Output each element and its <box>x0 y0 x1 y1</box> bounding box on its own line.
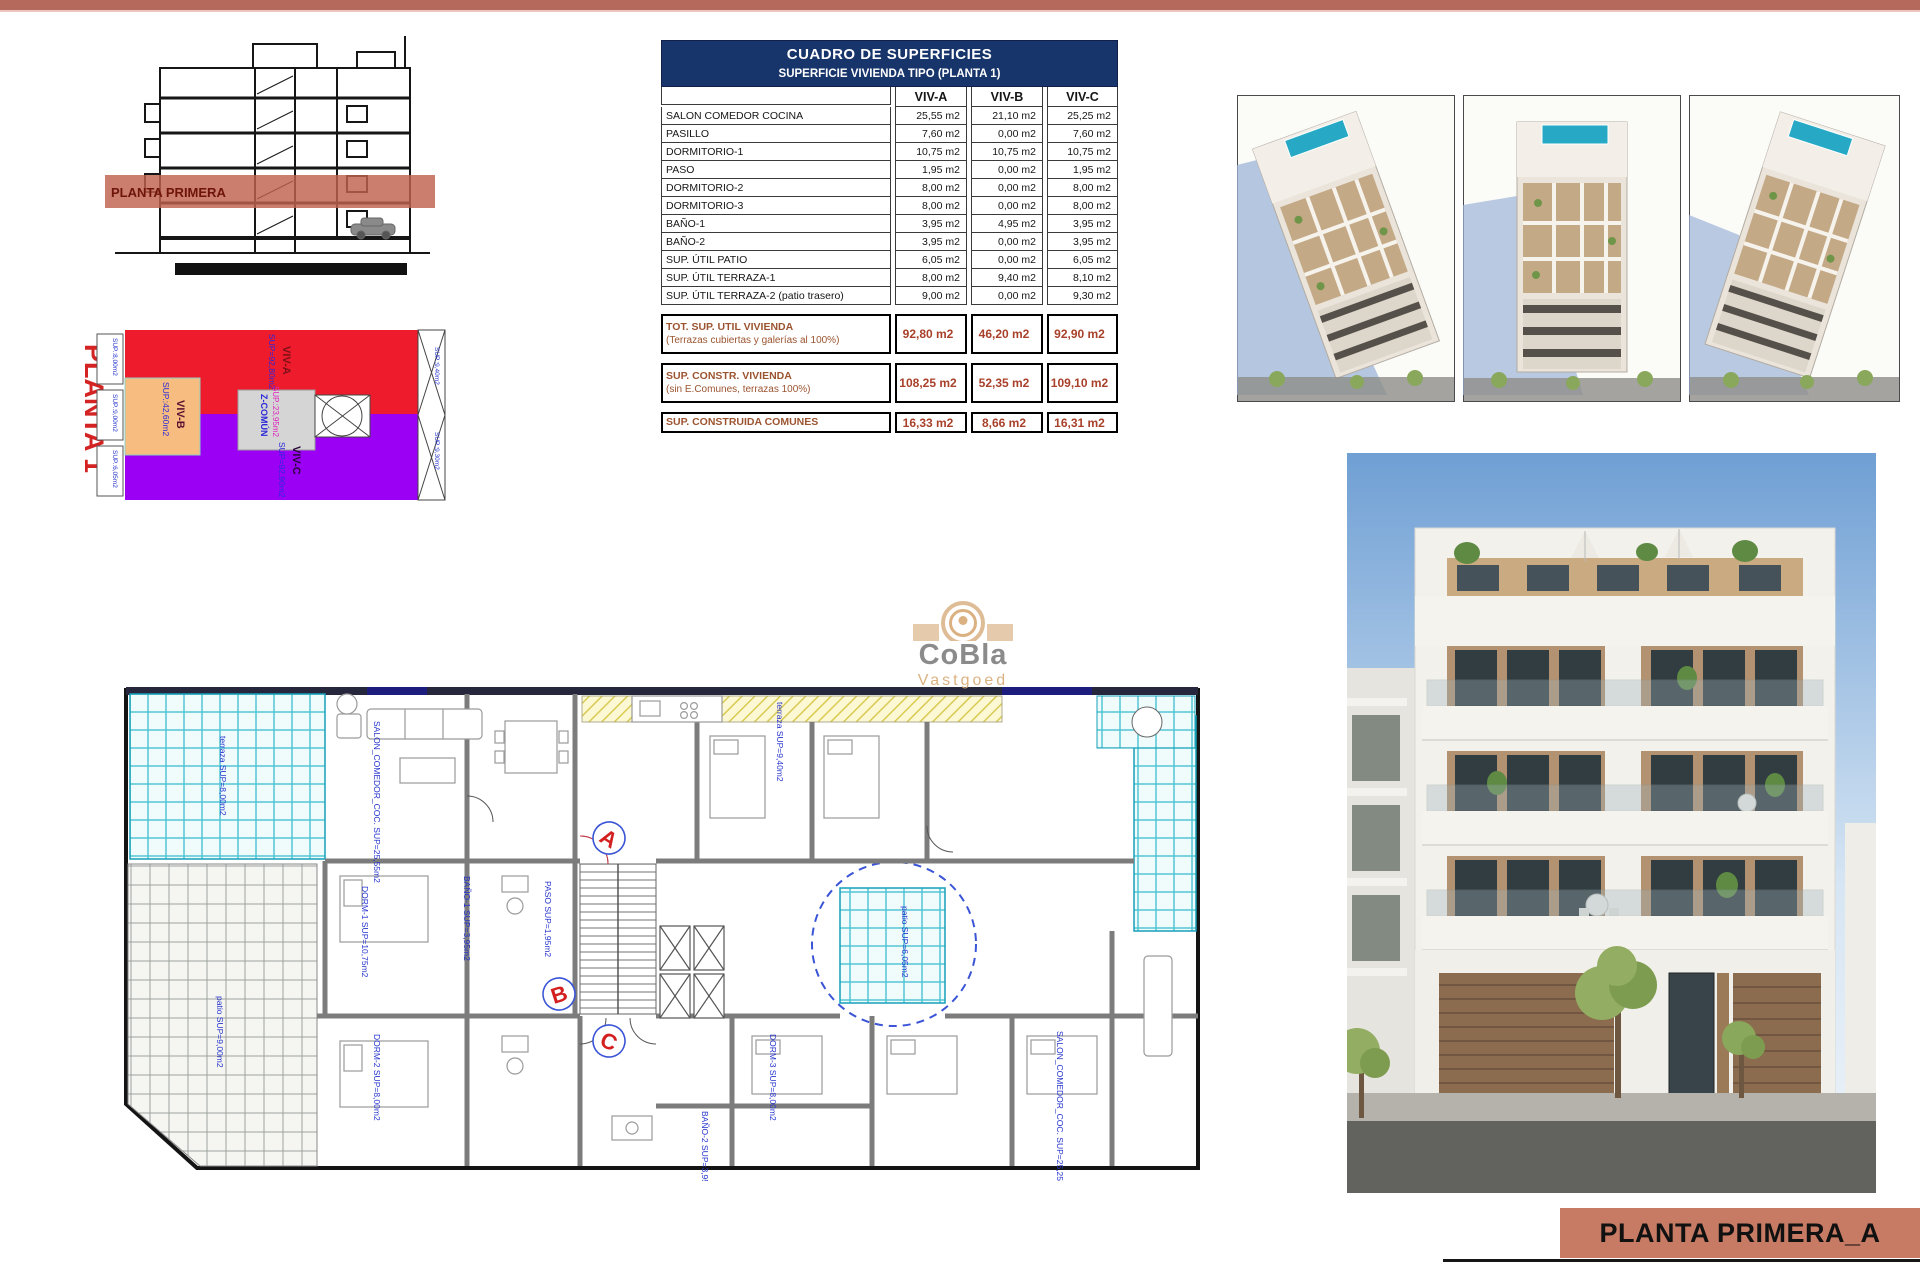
total-value: 92,80 m2 <box>895 314 967 354</box>
aerial-render-3 <box>1689 95 1900 402</box>
zone-label-viv-a: VIV-A <box>280 346 292 375</box>
facade-render <box>1347 453 1876 1193</box>
edge-label: SUP.:9,40m2 <box>433 347 440 385</box>
patio-tiles-center <box>840 888 945 1003</box>
sidewalk <box>1347 1093 1876 1121</box>
total-value: 108,25 m2 <box>895 363 967 403</box>
entrance-door <box>1669 973 1714 1098</box>
total-value: 52,35 m2 <box>971 363 1043 403</box>
col-header: VIV-B <box>971 87 1043 107</box>
cell-value: 8,00 m2 <box>1047 197 1118 215</box>
col-header: VIV-A <box>895 87 967 107</box>
table-gap <box>661 354 1118 363</box>
room-label: DORM-2 SUP=8,00m2 <box>372 1034 382 1121</box>
cell-value: 1,95 m2 <box>1047 161 1118 179</box>
cell-value: 0,00 m2 <box>971 125 1043 143</box>
total-label: SUP. CONSTR. VIVIENDA (sin E.Comunes, te… <box>661 363 891 403</box>
cell-value: 3,95 m2 <box>895 233 967 251</box>
zone-sup-viv-b: SUP.:42,60m2 <box>161 382 171 436</box>
row-label: BAÑO-2 <box>661 233 891 251</box>
cell-value: 0,00 m2 <box>971 179 1043 197</box>
edge-label: SUP.:8,00m2 <box>111 338 118 376</box>
watermark-logo: CoBla Vastgoed <box>893 597 1033 690</box>
top-accent-bar <box>0 0 1920 12</box>
cell-value: 7,60 m2 <box>895 125 967 143</box>
zone-sup-comun: SUP.:23,95m2 <box>271 386 280 438</box>
cell-value: 0,00 m2 <box>971 251 1043 269</box>
balcony-level-3 <box>1422 856 1828 950</box>
row-label: PASO <box>661 161 891 179</box>
cell-value: 8,00 m2 <box>895 179 967 197</box>
watermark-subname: Vastgoed <box>893 672 1033 690</box>
cell-value: 1,95 m2 <box>895 161 967 179</box>
edge-label: SUP.:9,30m2 <box>433 432 440 470</box>
cell-value: 3,95 m2 <box>895 215 967 233</box>
planta1-left-terraces <box>97 334 123 496</box>
cell-value: 0,00 m2 <box>971 287 1043 305</box>
room-label: terraza SUP=9,40m2 <box>775 702 785 782</box>
cell-value: 8,00 m2 <box>895 269 967 287</box>
row-label: DORMITORIO-3 <box>661 197 891 215</box>
street <box>1347 1121 1876 1193</box>
aerial-render-2 <box>1463 95 1681 402</box>
row-label: PASILLO <box>661 125 891 143</box>
cell-value: 25,55 m2 <box>895 107 967 125</box>
zone-sup-viv-a: SUP=92,80m2 <box>267 334 277 390</box>
room-label: PASO SUP=1,95m2 <box>543 881 553 957</box>
corner-cell <box>661 87 891 105</box>
zone-label-viv-b: VIV-B <box>174 400 186 429</box>
floor-plan: A B C terraza SUP=8,00m2 SALON_COMEDOR_C… <box>112 676 1212 1181</box>
cell-value: 10,75 m2 <box>1047 143 1118 161</box>
facade-main-building <box>1415 528 1835 1118</box>
cell-value: 9,00 m2 <box>895 287 967 305</box>
total-value: 92,90 m2 <box>1047 314 1118 354</box>
balcony-level-2 <box>1422 751 1828 845</box>
cell-value: 0,00 m2 <box>971 161 1043 179</box>
total-label: TOT. SUP. UTIL VIVIENDA (Terrazas cubier… <box>661 314 891 354</box>
section-basement-slab <box>175 263 407 275</box>
room-label: SALON_COMEDOR_COC. SUP=25,55m2 <box>372 721 382 883</box>
cell-value: 9,40 m2 <box>971 269 1043 287</box>
room-label: SALON_COMEDOR_COC. SUP=25,25m2 <box>1055 1031 1065 1181</box>
edge-label: SUP.:6,05m2 <box>111 450 118 488</box>
sheet-title: PLANTA PRIMERA_A <box>1599 1218 1880 1249</box>
cell-value: 3,95 m2 <box>1047 215 1118 233</box>
section-drawing: PLANTA PRIMERA <box>105 28 435 296</box>
watermark-name: CoBla <box>893 641 1033 670</box>
room-label: DORM-3 SUP=8,00m2 <box>768 1034 778 1121</box>
stair-core-symbol <box>315 395 370 437</box>
row-label: SUP. ÚTIL PATIO <box>661 251 891 269</box>
cell-value: 9,30 m2 <box>1047 287 1118 305</box>
aerial-render-1 <box>1237 95 1455 402</box>
room-label: terraza SUP=8,00m2 <box>218 736 228 816</box>
cell-value: 0,00 m2 <box>971 233 1043 251</box>
room-label: DORM-1 SUP=10,75m2 <box>360 886 370 978</box>
cell-value: 6,05 m2 <box>1047 251 1118 269</box>
neighbour-building-right <box>1845 823 1876 1118</box>
row-label: DORMITORIO-1 <box>661 143 891 161</box>
cell-value: 8,00 m2 <box>895 197 967 215</box>
cell-value: 3,95 m2 <box>1047 233 1118 251</box>
cell-value: 21,10 m2 <box>971 107 1043 125</box>
cell-value: 8,00 m2 <box>1047 179 1118 197</box>
cell-value: 7,60 m2 <box>1047 125 1118 143</box>
room-label: BAÑO-1 SUP=3,95m2 <box>462 876 472 961</box>
room-label: patio SUP=6,05m2 <box>900 906 910 978</box>
room-label: BAÑO-2 SUP=3,95m2 <box>700 1111 710 1181</box>
title-underline <box>1443 1259 1920 1262</box>
cell-value: 0,00 m2 <box>971 197 1043 215</box>
cell-value: 8,10 m2 <box>1047 269 1118 287</box>
total-value: 16,31 m2 <box>1047 412 1118 433</box>
sheet-title-block: PLANTA PRIMERA_A <box>1560 1208 1920 1258</box>
table-gap <box>661 305 1118 314</box>
planta1-diagram: PLANTA 1 SUP.:8,00m2 SUP.:9,00m2 SUP.:6,… <box>55 322 475 527</box>
cell-value: 25,25 m2 <box>1047 107 1118 125</box>
cell-value: 10,75 m2 <box>971 143 1043 161</box>
table-title: CUADRO DE SUPERFICIES <box>662 46 1117 63</box>
zone-sup-viv-c: SUP=92,90m2 <box>277 442 287 498</box>
surfaces-table: CUADRO DE SUPERFICIES SUPERFICIE VIVIEND… <box>661 40 1122 433</box>
total-value: 16,33 m2 <box>895 412 967 433</box>
cell-value: 10,75 m2 <box>895 143 967 161</box>
row-label: SUP. ÚTIL TERRAZA-2 (patio trasero) <box>661 287 891 305</box>
row-label: SALON COMEDOR COCINA <box>661 107 891 125</box>
room-label: patio SUP=9,00m2 <box>215 996 225 1068</box>
total-label: SUP. CONSTRUIDA COMUNES <box>661 412 891 433</box>
total-value: 46,20 m2 <box>971 314 1043 354</box>
total-value: 109,10 m2 <box>1047 363 1118 403</box>
row-label: DORMITORIO-2 <box>661 179 891 197</box>
total-value: 8,66 m2 <box>971 412 1043 433</box>
table-header: CUADRO DE SUPERFICIES SUPERFICIE VIVIEND… <box>661 40 1118 87</box>
zone-label-viv-c: VIV-C <box>290 446 302 475</box>
cell-value: 6,05 m2 <box>895 251 967 269</box>
balcony-level-1 <box>1422 646 1828 740</box>
row-label: BAÑO-1 <box>661 215 891 233</box>
table-subtitle: SUPERFICIE VIVIENDA TIPO (PLANTA 1) <box>662 68 1117 80</box>
plan-sheet: PLANTA PRIMERA PLANTA 1 SUP.:8,00m2 SUP.… <box>0 0 1920 1280</box>
table-gap <box>661 403 1118 412</box>
cell-value: 4,95 m2 <box>971 215 1043 233</box>
zone-label-comun: Z-COMÚN <box>259 394 270 437</box>
edge-label: SUP.:9,00m2 <box>111 394 118 432</box>
col-header: VIV-C <box>1047 87 1118 107</box>
shower-icon <box>1132 707 1162 737</box>
watermark-shell-icon <box>893 597 1033 641</box>
section-label: PLANTA PRIMERA <box>111 185 226 200</box>
row-label: SUP. ÚTIL TERRAZA-1 <box>661 269 891 287</box>
